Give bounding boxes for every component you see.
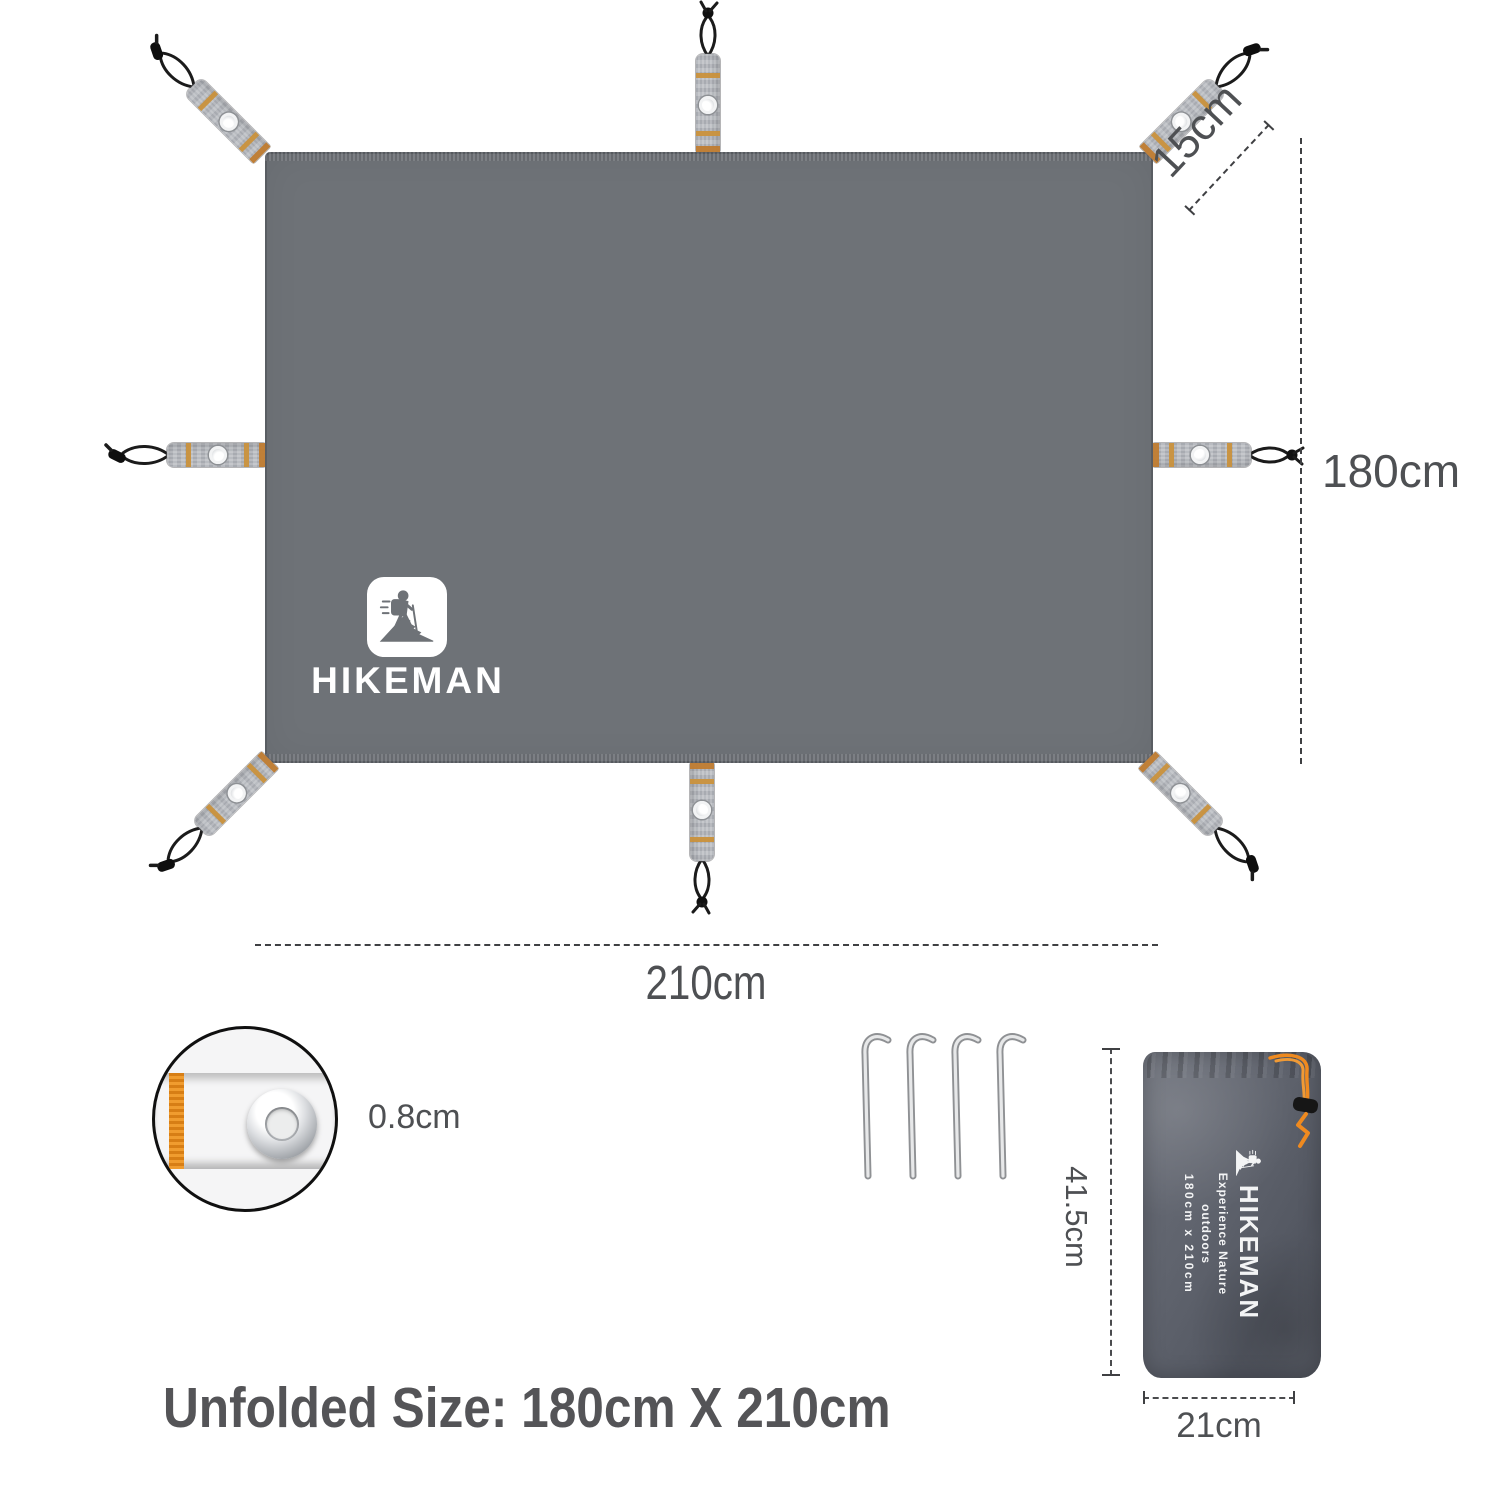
orange-stitch-stripe	[169, 1073, 184, 1169]
strap-bottom-right	[1138, 751, 1275, 888]
strap-right-middle	[1153, 442, 1321, 468]
strap-webbing	[167, 443, 265, 467]
stitch-band	[696, 146, 720, 152]
product-dimension-diagram: HIKEMAN 15cm 180cm 210cm	[0, 0, 1500, 1500]
dim-cap	[1293, 1391, 1295, 1404]
strap-top-left	[134, 27, 271, 164]
dim-cap	[1102, 1048, 1120, 1050]
guyline-cord-icon	[1247, 440, 1317, 470]
grommet-detail-circle	[152, 1026, 338, 1212]
strap-webbing	[690, 763, 714, 861]
grommet-icon	[1191, 446, 1209, 464]
grommet-icon	[216, 109, 241, 134]
tarp-brand-name: HIKEMAN	[300, 660, 516, 702]
strap-bottom-left	[142, 751, 279, 888]
strap-webbing	[1139, 752, 1225, 838]
strap-webbing	[1153, 443, 1251, 467]
strap-webbing	[696, 54, 720, 152]
dim-cap	[1184, 205, 1195, 215]
drawstring-icon	[1262, 1048, 1332, 1178]
tarp-footprint: HIKEMAN	[265, 152, 1153, 763]
spec-unfolded-size: Unfolded Size: 180cm X 210cm	[163, 1374, 891, 1442]
stitch-band	[198, 91, 219, 112]
bag-print: HIKEMAN Experience Nature outdoors 180cm…	[1177, 1139, 1269, 1329]
dim-cap	[1102, 1374, 1120, 1376]
bag-tagline-bottom: outdoors	[1199, 1204, 1213, 1264]
stitch-band	[239, 132, 260, 153]
stitch-band	[244, 443, 249, 467]
guyline-cord-icon	[101, 440, 171, 470]
dim-label-bag-width: 21cm	[1159, 1406, 1279, 1446]
strap-bottom-middle	[689, 763, 715, 931]
strap-left-middle	[97, 442, 265, 468]
hiker-logo-icon	[1234, 1148, 1264, 1178]
dim-cap	[1263, 120, 1274, 130]
strap-top-middle	[695, 0, 721, 152]
grommet-hole	[265, 1107, 299, 1141]
guyline-cord-icon	[693, 0, 723, 58]
stitch-band	[690, 763, 714, 769]
strap-webbing	[184, 77, 270, 163]
guyline-cord-icon	[687, 857, 717, 927]
stitch-band	[1191, 804, 1212, 825]
dim-label-tarp-height: 180cm	[1322, 444, 1460, 498]
dim-line-bag-width	[1143, 1397, 1295, 1399]
dim-line-tarp-height	[1300, 138, 1302, 764]
dim-label-grommet: 0.8cm	[368, 1098, 461, 1137]
grommet-icon	[209, 446, 227, 464]
strap-webbing	[192, 752, 278, 838]
stitch-band	[1169, 443, 1174, 467]
dim-cap	[1143, 1391, 1145, 1404]
bag-brand-name: HIKEMAN	[1233, 1185, 1264, 1320]
stitch-band	[690, 779, 714, 784]
stitch-band	[1153, 443, 1159, 467]
stitch-band	[1150, 763, 1171, 784]
grommet-icon	[693, 801, 711, 819]
stitch-band	[1227, 443, 1232, 467]
hiker-logo-icon	[376, 586, 438, 648]
dim-label-tarp-width: 210cm	[622, 956, 790, 1011]
grommet-closeup-icon	[247, 1089, 317, 1159]
stitch-band	[696, 73, 720, 78]
stitch-band	[206, 804, 227, 825]
stitch-band	[247, 763, 268, 784]
stitch-band	[186, 443, 191, 467]
spec-list: Unfolded Size: 180cm X 210cm Storage Siz…	[163, 1238, 891, 1500]
bag-tagline-top: Experience Nature	[1216, 1173, 1230, 1295]
bag-print-size: 180cm x 210cm	[1182, 1174, 1196, 1295]
stitch-band	[259, 443, 265, 467]
grommet-icon	[224, 781, 249, 806]
stitch-band	[696, 131, 720, 136]
tent-stakes-icon	[852, 1030, 1042, 1200]
dim-line-tarp-width	[255, 944, 1158, 946]
stitch-band	[690, 837, 714, 842]
brand-logo-badge	[367, 577, 447, 657]
grommet-icon	[1168, 781, 1193, 806]
dim-line-bag-height	[1110, 1048, 1112, 1376]
grommet-icon	[699, 96, 717, 114]
dim-label-bag-height: 41.5cm	[1060, 1158, 1094, 1276]
